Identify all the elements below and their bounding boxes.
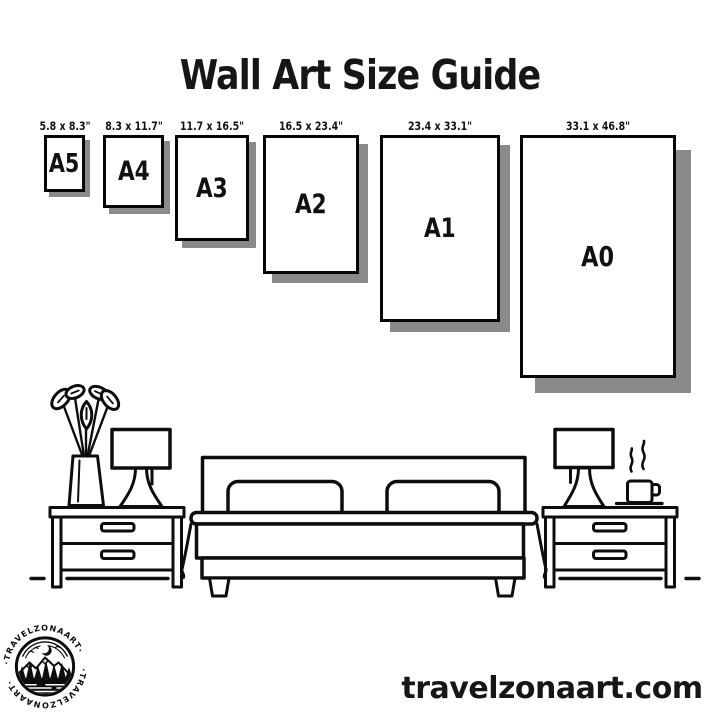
lamp-shade bbox=[555, 430, 613, 468]
lamp-shade bbox=[112, 430, 170, 469]
table-lamp-right bbox=[555, 430, 613, 507]
wall-art-size-guide-page: { "title": "Wall Art Size Guide", "websi… bbox=[0, 0, 720, 720]
drawer-handle bbox=[102, 551, 135, 559]
blanket-drape-left bbox=[182, 524, 191, 578]
bed-base bbox=[202, 558, 524, 578]
bed-leg-right bbox=[496, 578, 516, 596]
logo-badge: ·TRAVELZONAART· ·TRAVELZONAART· bbox=[0, 617, 93, 715]
double-bed bbox=[182, 458, 546, 597]
website-text: travelzonaart.com bbox=[392, 671, 712, 706]
drawer-handle bbox=[594, 524, 627, 532]
nightstand-right bbox=[543, 508, 677, 588]
drawer-handle bbox=[594, 551, 627, 559]
coffee-cup bbox=[617, 441, 663, 504]
nightstand-left bbox=[50, 508, 184, 588]
table-lamp-left bbox=[112, 430, 170, 507]
vase-body bbox=[69, 456, 104, 506]
cup-body bbox=[628, 481, 653, 503]
drawer-handle bbox=[102, 524, 135, 532]
bed-leg-left bbox=[210, 578, 230, 596]
steam bbox=[631, 449, 633, 472]
mattress bbox=[197, 524, 524, 558]
bedroom-scene-illustration: ·TRAVELZONAART· ·TRAVELZONAART· bbox=[0, 0, 720, 720]
steam bbox=[642, 441, 644, 469]
